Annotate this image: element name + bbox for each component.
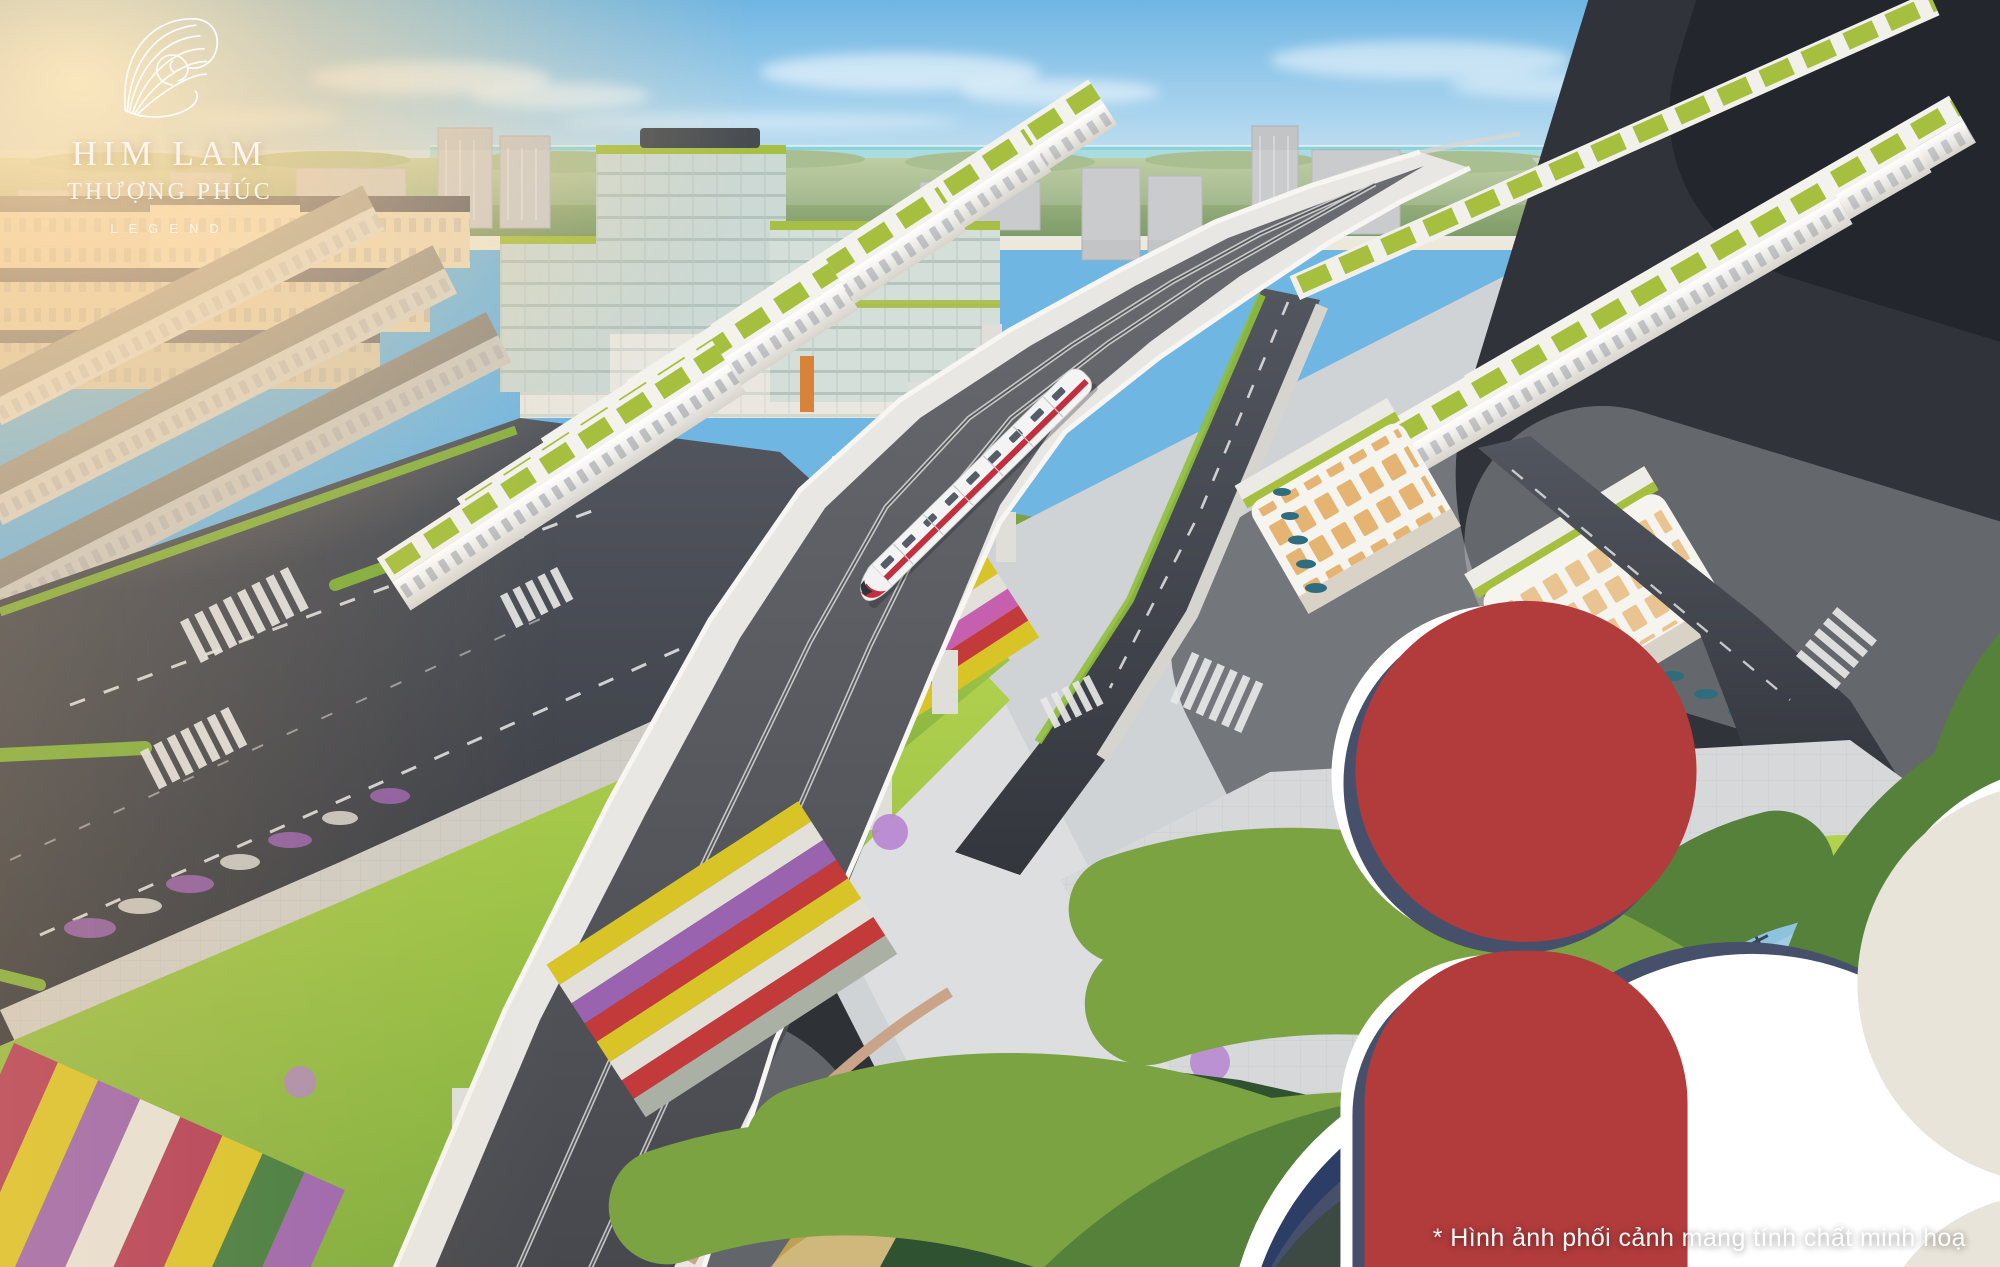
logo-line-3: LEGEND: [52, 221, 288, 236]
render-image: HIM LAM THƯỢNG PHÚC LEGEND * Hình ảnh ph…: [0, 0, 2000, 1267]
disclaimer-text: * Hình ảnh phối cảnh mang tính chất minh…: [1433, 1224, 1966, 1253]
logo-line-1: HIM LAM: [52, 134, 288, 174]
scene-svg: [0, 0, 2000, 1267]
brand-logo: HIM LAM THƯỢNG PHÚC LEGEND: [52, 6, 288, 236]
logo-line-2: THƯỢNG PHÚC: [52, 179, 288, 206]
nautilus-shell-icon: [95, 6, 245, 134]
